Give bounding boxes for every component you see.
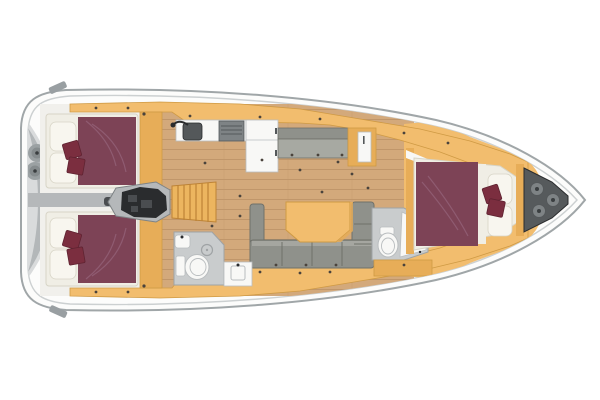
locker-hatch [531, 183, 544, 196]
accent-cushion [487, 199, 506, 218]
salon-table [286, 202, 350, 242]
cabin-bulkhead [406, 148, 414, 254]
engine-detail [131, 206, 138, 212]
bed-spread [416, 162, 478, 246]
galley-sink [183, 123, 202, 140]
settee-seat [278, 139, 348, 158]
bed-spread [78, 117, 136, 185]
settee-backrest [278, 128, 348, 139]
chart-table-handle [275, 128, 277, 134]
head-cabinet [374, 260, 432, 276]
accent-cushion [67, 157, 86, 176]
locker-hatch [547, 194, 560, 207]
vanity-faucet-dot [237, 264, 240, 267]
shower-drain-dot [206, 249, 208, 251]
engine-detail [141, 200, 152, 208]
toilet-tank [176, 256, 185, 276]
aft-wardrobe-port [140, 112, 162, 190]
accent-cushion [67, 247, 86, 266]
chart-table [246, 120, 278, 172]
engine-detail [128, 195, 137, 202]
bed-spread [78, 215, 136, 283]
bed-sheet-strip [478, 164, 486, 244]
galley-faucet-base [171, 123, 176, 128]
aft-cabin-starboard [46, 212, 138, 286]
companionway-steps [172, 182, 216, 222]
vanity-knob-dot [419, 251, 421, 253]
galley-stove [219, 121, 244, 141]
floor-plan-canvas [0, 0, 600, 400]
locker-handle [363, 136, 365, 144]
aft-cabin-port [46, 114, 138, 188]
toilet-bowl [378, 233, 398, 257]
chart-table-handle [275, 150, 277, 156]
sink-faucet-dot [181, 236, 184, 239]
locker-hatch [533, 205, 546, 218]
bow-bulkhead [516, 164, 524, 236]
